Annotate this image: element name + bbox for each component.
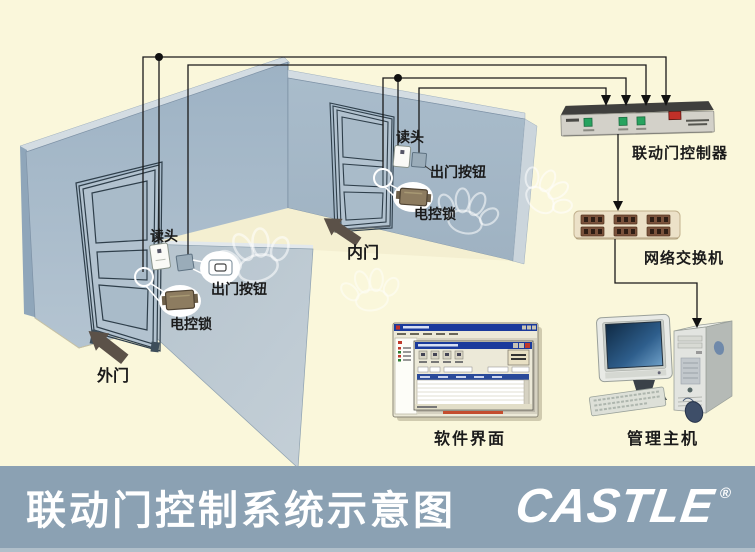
exit-button-callout: [200, 251, 240, 285]
exit-button-mount: [176, 254, 194, 271]
card-reader: [393, 145, 411, 167]
room-illustration: 读头 出门按钮 电控锁 外门 读头 出门按钮 电控锁 内门 联动门控制器 网络交…: [0, 0, 755, 466]
pc-monitor: [596, 314, 672, 382]
network-switch-device: [574, 211, 680, 240]
outer-door-reader-label: 读头: [150, 228, 178, 244]
wire-junction-dot: [155, 53, 163, 61]
card-reader: [149, 243, 170, 270]
dialog-big-button: [508, 350, 529, 365]
wire-junction-dot: [394, 74, 402, 82]
title-bar: 联动门控制系统示意图 CASTLE ®: [0, 466, 755, 552]
page-title: 联动门控制系统示意图: [26, 478, 456, 536]
controller-label: 联动门控制器: [632, 144, 728, 162]
controller-power-switch: [669, 111, 681, 119]
software-window: [393, 323, 542, 421]
software-label: 软件界面: [434, 429, 506, 448]
exit-button-mount: [411, 152, 426, 167]
schematic-page: 读头 出门按钮 电控锁 外门 读头 出门按钮 电控锁 内门 联动门控制器 网络交…: [0, 0, 755, 552]
network-switch-label: 网络交换机: [644, 249, 724, 267]
outer-door-label: 外门: [96, 366, 129, 385]
pc-tower: [674, 321, 732, 413]
inner-door-lock-label: 电控锁: [414, 206, 456, 222]
controller-device: [561, 101, 715, 137]
outer-door-exit-button-label: 出门按钮: [211, 281, 267, 297]
controller-brand-mark: [566, 119, 579, 122]
software-dialog: [414, 341, 535, 412]
pc-keyboard: [589, 387, 666, 416]
brand-logo-text: CASTLE: [513, 483, 718, 531]
host-label: 管理主机: [627, 429, 699, 448]
window-alert-text-line: [443, 411, 503, 414]
inner-door-reader-label: 读头: [396, 129, 424, 145]
management-host: [589, 314, 732, 424]
inner-door: [330, 103, 394, 232]
electric-lock-callout: [159, 285, 201, 317]
brand-logo: CASTLE ®: [513, 483, 733, 531]
outer-door-lock-label: 电控锁: [170, 316, 212, 332]
registered-trademark-icon: ®: [719, 485, 732, 502]
inner-door-label: 内门: [347, 243, 379, 262]
inner-door-exit-button-label: 出门按钮: [430, 164, 486, 180]
dialog-table-header: [417, 374, 529, 380]
